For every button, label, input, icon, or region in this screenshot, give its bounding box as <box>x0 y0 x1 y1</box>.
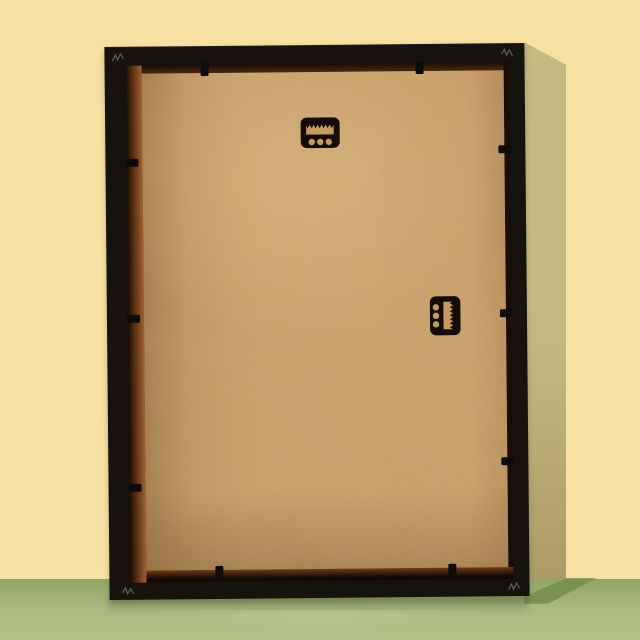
sawtooth-hanger-top-icon <box>299 113 341 151</box>
vnail-mark-top-left-icon <box>111 52 125 64</box>
floor-sheen <box>95 610 545 640</box>
vnail-mark-top-right-icon <box>500 47 514 59</box>
retainer-tab-left-3 <box>129 484 142 492</box>
retainer-tab-bottom-1 <box>215 566 223 579</box>
vnail-mark-bottom-left-icon <box>122 585 136 597</box>
vnail-mark-bottom-right-icon <box>507 580 521 592</box>
retainer-tab-right-1 <box>498 145 511 153</box>
retainer-tab-top-1 <box>201 63 209 76</box>
frame-shadow-on-wall <box>524 42 566 580</box>
sawtooth-hanger-side-icon <box>427 295 465 337</box>
photo-scene <box>0 0 640 640</box>
retainer-tab-right-2 <box>500 309 513 317</box>
picture-frame-back <box>104 43 529 600</box>
retainer-tab-left-2 <box>127 315 140 323</box>
retainer-tab-right-3 <box>501 457 514 465</box>
retainer-tab-left-1 <box>125 159 138 167</box>
retainer-tab-bottom-2 <box>448 564 456 577</box>
retainer-tab-top-2 <box>416 61 424 74</box>
